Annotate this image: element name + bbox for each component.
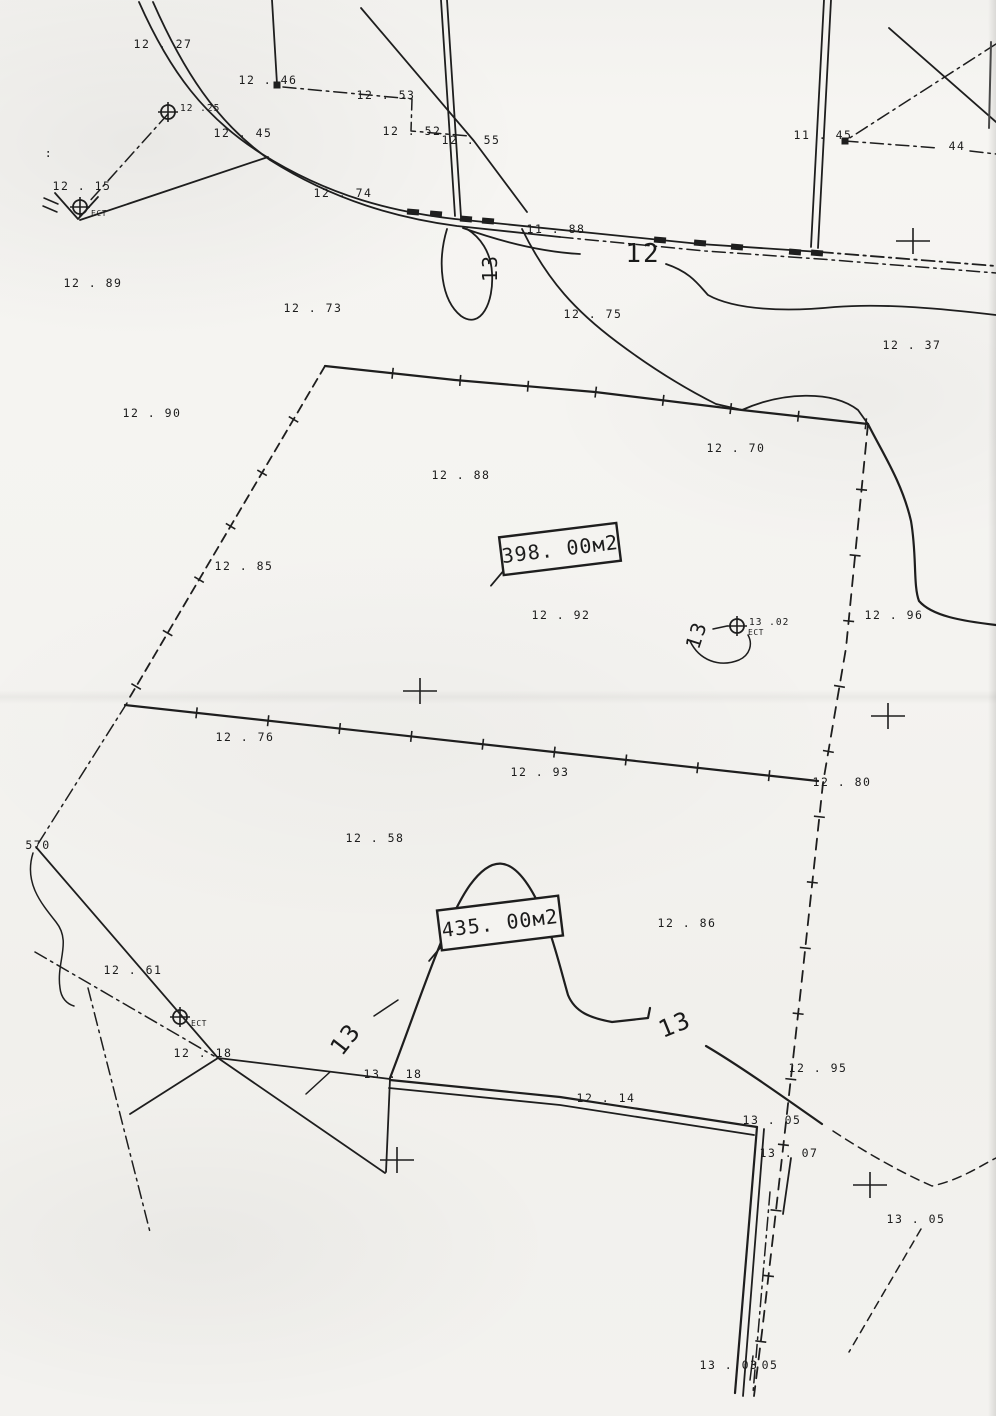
spot-height-label: 05 bbox=[762, 1358, 779, 1372]
survey-station-marker: 13 .02ЕСТ bbox=[727, 616, 789, 637]
boundary-tick bbox=[460, 375, 461, 386]
spot-height-label: 12 . 74 bbox=[314, 186, 373, 200]
boundary-tick bbox=[339, 723, 340, 734]
spot-height-label: 12 . 27 bbox=[134, 37, 193, 51]
road-survey-mark bbox=[430, 210, 442, 217]
boundary-tick bbox=[798, 411, 799, 422]
road-survey-mark bbox=[731, 243, 743, 250]
boundary-tick bbox=[843, 621, 854, 622]
spot-height-label: 12 . 18 bbox=[174, 1046, 233, 1060]
spot-height-label: 12 . 58 bbox=[346, 831, 405, 845]
station-elevation-label: 13 .02 bbox=[749, 617, 789, 628]
boundary-tick bbox=[771, 1210, 782, 1211]
spot-height-label: 12 . 76 bbox=[216, 730, 275, 744]
bottom-right-dash bbox=[849, 1229, 921, 1352]
junction-ray-sw bbox=[130, 1058, 218, 1114]
pole-line-c bbox=[272, 0, 277, 84]
spot-height-label: 44 bbox=[949, 139, 966, 153]
spot-height-label: 570 bbox=[25, 838, 50, 852]
bottom-road-lower bbox=[389, 1088, 754, 1135]
lower-left-lines-layer bbox=[30, 703, 390, 1232]
contour-elevation-label: 13 bbox=[478, 254, 502, 282]
grid-cross-icon bbox=[871, 703, 905, 729]
spot-height-label: 12 . 88 bbox=[432, 468, 491, 482]
boundary-to-570 bbox=[36, 703, 127, 847]
contour-elevation-label: 13 bbox=[325, 1017, 367, 1060]
spot-height-label: 12 . 37 bbox=[883, 338, 942, 352]
topright-diagonal-dash bbox=[845, 44, 996, 141]
spot-height-label: 12 . 85 bbox=[215, 559, 274, 573]
left-wavy-line bbox=[30, 853, 74, 1006]
spot-height-label: 12 . 93 bbox=[511, 765, 570, 779]
spot-height-label: 12 . 15 bbox=[53, 179, 112, 193]
spot-height-label: 11 . 88 bbox=[527, 222, 586, 236]
boundary-tick bbox=[769, 770, 770, 781]
road-survey-mark bbox=[694, 239, 706, 246]
topright-diagonal-solid bbox=[889, 28, 996, 122]
boundary-tick bbox=[131, 684, 140, 690]
road-survey-mark bbox=[789, 248, 801, 255]
stream-hump bbox=[742, 396, 868, 424]
contour-elevation-label: 13 bbox=[655, 1005, 696, 1043]
survey-stations-layer: 13 .02ЕСТЕСТ12 .25ЕСТ bbox=[70, 102, 789, 1028]
spot-height-label: 12 . 55 bbox=[442, 133, 501, 147]
road-edge-lower bbox=[153, 2, 560, 237]
boundary-tick bbox=[755, 1341, 766, 1342]
station-elevation-label: 12 .25 bbox=[180, 103, 220, 114]
boundary-tick bbox=[482, 739, 483, 750]
spot-height-label: 12 . 90 bbox=[123, 406, 182, 420]
spot-height-label: 13 . 05 bbox=[743, 1113, 802, 1127]
boundary-tick bbox=[257, 470, 266, 476]
bottom-road-upper bbox=[390, 1080, 757, 1127]
boundary-tick bbox=[528, 381, 529, 392]
survey-station-marker: ЕСТ bbox=[70, 197, 107, 218]
line-13-07 bbox=[783, 1158, 791, 1214]
spot-height-label: : bbox=[45, 146, 53, 160]
spot-height-label: 12 . 73 bbox=[284, 301, 343, 315]
station-est-label: ЕСТ bbox=[191, 1019, 207, 1028]
boundary-tick bbox=[800, 947, 811, 948]
boundary-tick bbox=[730, 403, 731, 414]
station-cross-icon bbox=[158, 102, 178, 122]
spot-height-label: 13 . 18 bbox=[364, 1067, 423, 1081]
grid-cross-icon bbox=[380, 1147, 414, 1173]
spot-height-label: 12 . 45 bbox=[214, 126, 273, 140]
contour-12-right bbox=[666, 264, 996, 315]
labels-layer: 12 . 2712 . 4612 . 5312 . 5212 . 5511 . … bbox=[25, 37, 965, 1372]
boundary-tick bbox=[392, 368, 393, 379]
spot-height-label: 12 . 80 bbox=[813, 775, 872, 789]
boundary-tick bbox=[595, 387, 596, 398]
road-survey-mark bbox=[482, 217, 494, 224]
station-cross-icon bbox=[727, 616, 747, 636]
spot-height-label: 13 . 07 bbox=[760, 1146, 819, 1160]
boundary-tick bbox=[763, 1275, 774, 1276]
bottom-road-layer bbox=[389, 42, 991, 1396]
station-est-label: ЕСТ bbox=[91, 209, 107, 218]
road-survey-mark bbox=[460, 215, 472, 222]
boundary-tick bbox=[814, 816, 825, 817]
boundary-tick bbox=[793, 1013, 804, 1014]
grid-crosses-layer bbox=[380, 228, 930, 1198]
boundary-tick bbox=[194, 577, 203, 583]
boundary-tick bbox=[663, 395, 664, 406]
small-triangle-vertical bbox=[386, 1079, 390, 1172]
spot-height-label: 12 . 95 bbox=[789, 1061, 848, 1075]
spot-height-label: 12 . 70 bbox=[707, 441, 766, 455]
boundary-tick bbox=[856, 489, 867, 490]
survey-station-marker: 12 .25 bbox=[158, 102, 220, 122]
cadastral-map-canvas: 13 .02ЕСТЕСТ12 .25ЕСТ 398. 00м2435. 00м2… bbox=[0, 0, 996, 1416]
boundary-tick bbox=[554, 747, 555, 758]
contour-13-dashed-right bbox=[833, 1131, 996, 1186]
area-box: 398. 00м2 bbox=[485, 523, 622, 586]
stream-right-side bbox=[868, 424, 996, 625]
spot-height-label: 12 . 52 bbox=[383, 124, 442, 138]
spot-height-label: 12 . 53 bbox=[357, 88, 416, 102]
pole-line-b bbox=[811, 0, 831, 248]
scan-edge-line bbox=[989, 42, 991, 128]
boundary-tick bbox=[163, 630, 172, 636]
boundary-tick bbox=[850, 555, 861, 556]
steep-dash-line bbox=[88, 988, 150, 1232]
spot-height-label: 12 . 14 bbox=[577, 1091, 636, 1105]
road-survey-mark bbox=[407, 208, 419, 215]
boundary-tick bbox=[697, 762, 698, 773]
contour-elevation-label: 13 bbox=[681, 618, 713, 652]
parcel-top-edge bbox=[325, 366, 868, 424]
boundary-tick bbox=[411, 731, 412, 742]
contour-elevation-label: 12 bbox=[625, 239, 660, 269]
area-box: 435. 00м2 bbox=[423, 896, 564, 961]
contour-13-hill bbox=[390, 864, 650, 1078]
spot-height-label: 13 . 05 bbox=[887, 1212, 946, 1226]
grid-cross-icon bbox=[853, 1172, 887, 1198]
spot-height-label: 12 . 89 bbox=[64, 276, 123, 290]
station-cross-icon bbox=[170, 1007, 190, 1027]
parcel-right-edge bbox=[754, 424, 868, 1396]
station-est-label: ЕСТ bbox=[748, 628, 764, 637]
boundary-tick bbox=[834, 685, 845, 687]
boundary-tick bbox=[289, 417, 298, 423]
pole-line-a bbox=[441, 0, 461, 217]
spot-height-label: 12 . 46 bbox=[239, 73, 298, 87]
spot-height-label: 12 . 92 bbox=[532, 608, 591, 622]
road-survey-mark bbox=[811, 249, 823, 256]
spot-height-label: 12 . 75 bbox=[564, 307, 623, 321]
spot-height-label: 12 . 86 bbox=[658, 916, 717, 930]
boundary-tick bbox=[196, 707, 197, 718]
topleft-hatch-marks bbox=[43, 198, 58, 212]
boundary-tick bbox=[785, 1079, 796, 1080]
spot-height-label: 11 . 45 bbox=[794, 128, 853, 142]
road-edge-upper-dashed bbox=[820, 252, 996, 266]
boundary-tick bbox=[625, 754, 626, 765]
spot-height-label: 12 . 96 bbox=[865, 608, 924, 622]
boundary-tick bbox=[226, 523, 235, 529]
topright-boundary-44 bbox=[845, 141, 996, 154]
scanned-survey-map-page: 13 .02ЕСТЕСТ12 .25ЕСТ 398. 00м2435. 00м2… bbox=[0, 0, 996, 1416]
grid-cross-icon bbox=[403, 678, 437, 704]
boundary-tick bbox=[823, 751, 834, 753]
spot-height-label: 12 . 61 bbox=[104, 963, 163, 977]
boundary-ticks-layer bbox=[131, 368, 867, 1342]
parcel-boundaries-layer bbox=[125, 366, 868, 1396]
boundary-tick bbox=[268, 715, 269, 726]
contours-layer bbox=[306, 228, 996, 1186]
spot-height-label: 13 . 03 bbox=[700, 1358, 759, 1372]
boundary-tick bbox=[807, 882, 818, 883]
grid-cross-icon bbox=[896, 228, 930, 254]
